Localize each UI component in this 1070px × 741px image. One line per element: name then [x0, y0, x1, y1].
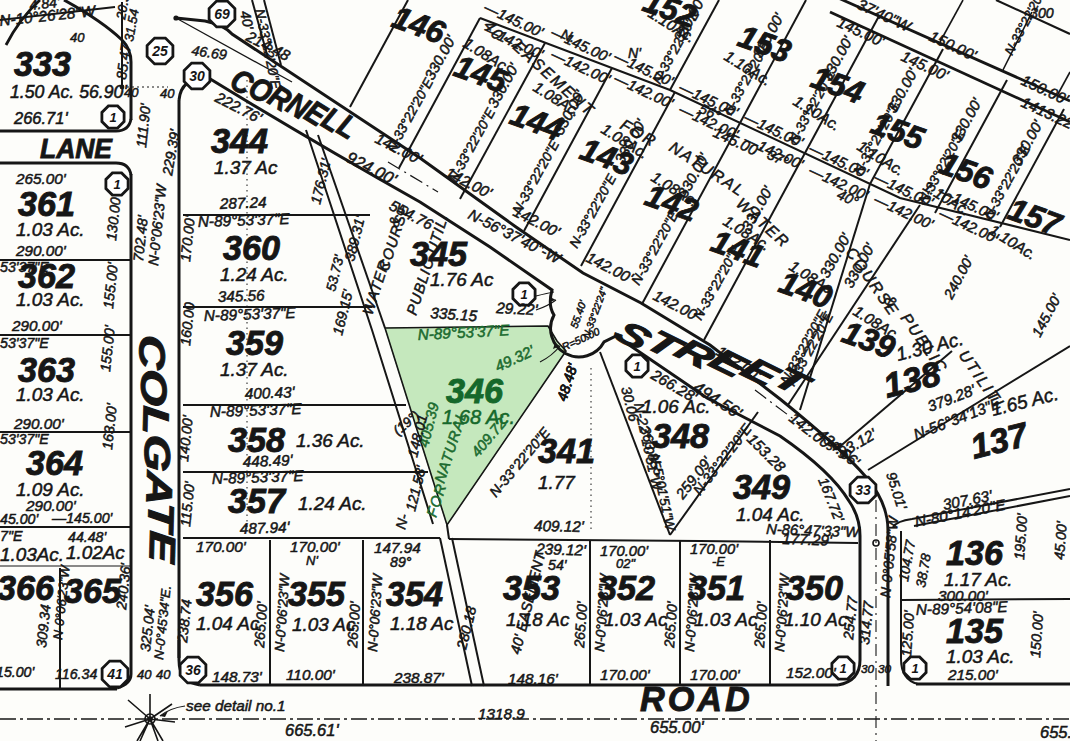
- svg-text:40: 40: [137, 667, 152, 682]
- svg-text:135: 135: [946, 612, 1004, 650]
- svg-text:655.0: 655.0: [1040, 723, 1070, 741]
- svg-text:1.76 Ac: 1.76 Ac: [430, 269, 494, 290]
- svg-text:1.03 Ac: 1.03 Ac: [694, 609, 758, 630]
- svg-text:1.03 Ac.: 1.03 Ac.: [16, 219, 85, 240]
- svg-text:349: 349: [733, 468, 790, 506]
- svg-text:359: 359: [226, 324, 283, 362]
- svg-text:1: 1: [839, 661, 846, 676]
- svg-text:152.00': 152.00': [786, 664, 837, 681]
- svg-text:36: 36: [185, 662, 201, 678]
- svg-text:89°: 89°: [390, 554, 412, 570]
- svg-text:30: 30: [189, 68, 205, 84]
- svg-text:1: 1: [911, 661, 918, 676]
- svg-text:356: 356: [196, 575, 254, 613]
- svg-text:116.34: 116.34: [55, 666, 97, 682]
- svg-text:346: 346: [446, 372, 504, 410]
- svg-text:54': 54': [548, 557, 568, 573]
- svg-text:265.00': 265.00': [344, 600, 363, 649]
- svg-text:N-89°53'37"E: N-89°53'37"E: [212, 467, 305, 487]
- svg-text:53'37"E: 53'37"E: [0, 335, 49, 351]
- svg-text:195.00': 195.00': [1011, 512, 1030, 560]
- svg-text:290.00': 290.00': [13, 415, 65, 432]
- svg-text:177.29': 177.29': [782, 530, 833, 549]
- svg-text:1.03 Ac: 1.03 Ac: [604, 609, 668, 630]
- svg-text:25: 25: [151, 43, 168, 59]
- svg-text:655.00': 655.00': [650, 718, 704, 736]
- svg-text:ROAD: ROAD: [640, 680, 753, 718]
- svg-text:110.00': 110.00': [286, 666, 336, 683]
- svg-text:345.56: 345.56: [218, 286, 266, 305]
- svg-text:LANE: LANE: [40, 132, 113, 164]
- svg-text:30: 30: [861, 662, 875, 676]
- svg-text:333: 333: [14, 45, 71, 83]
- svg-text:1.04 Ac: 1.04 Ac: [196, 613, 260, 634]
- svg-text:1.24 Ac.: 1.24 Ac.: [220, 264, 289, 285]
- svg-text:136: 136: [946, 534, 1004, 572]
- svg-text:125.00': 125.00': [898, 609, 917, 657]
- svg-text:265.00': 265.00': [15, 170, 67, 187]
- svg-text:360: 360: [223, 229, 280, 267]
- svg-text:30: 30: [838, 447, 852, 461]
- svg-text:1.37 Ac.: 1.37 Ac.: [220, 359, 289, 380]
- svg-text:344: 344: [211, 122, 268, 160]
- svg-text:148.73': 148.73': [212, 668, 263, 685]
- svg-text:7"E: 7"E: [0, 528, 23, 544]
- svg-text:265.00': 265.00': [251, 600, 270, 649]
- svg-text:350: 350: [786, 569, 843, 607]
- svg-text:69: 69: [214, 6, 230, 22]
- svg-text:1: 1: [109, 110, 116, 125]
- svg-text:41: 41: [106, 666, 123, 682]
- svg-text:53'37"E: 53'37"E: [0, 259, 49, 275]
- svg-text:1.37 Ac: 1.37 Ac: [214, 157, 278, 178]
- svg-text:355: 355: [288, 575, 346, 613]
- svg-text:N-89°54'08"E: N-89°54'08"E: [916, 598, 1009, 618]
- svg-text:170.00': 170.00': [600, 666, 651, 683]
- svg-text:-E: -E: [712, 554, 725, 569]
- svg-text:1.03 Ac.: 1.03 Ac.: [946, 646, 1015, 667]
- svg-text:290.00': 290.00': [11, 317, 63, 334]
- svg-text:45.00': 45.00': [1051, 520, 1070, 561]
- svg-text:—145.00': —145.00': [51, 510, 114, 526]
- svg-text:1.24 Ac.: 1.24 Ac.: [298, 493, 367, 514]
- svg-text:287.24: 287.24: [219, 193, 267, 212]
- svg-text:265.00': 265.00': [571, 600, 590, 649]
- svg-text:357: 357: [228, 482, 287, 520]
- svg-text:1.06 Ac.: 1.06 Ac.: [642, 396, 711, 417]
- svg-text:1: 1: [633, 359, 640, 374]
- svg-text:see detail no.1: see detail no.1: [186, 697, 286, 714]
- svg-text:N-89°53'37"E: N-89°53'37"E: [204, 304, 297, 324]
- svg-text:40: 40: [160, 86, 175, 101]
- svg-text:N-89°53'37"E: N-89°53'37"E: [198, 210, 291, 230]
- svg-text:1.36 Ac.: 1.36 Ac.: [296, 430, 365, 451]
- svg-text:1.03 Ac.: 1.03 Ac.: [16, 384, 85, 405]
- svg-text:33: 33: [855, 482, 871, 498]
- svg-text:265.00': 265.00': [751, 600, 770, 649]
- svg-text:170.00': 170.00': [690, 666, 741, 683]
- svg-text:1.50 Ac. 56.90': 1.50 Ac. 56.90': [10, 82, 127, 102]
- svg-text:N': N': [306, 553, 318, 568]
- svg-text:1.18 Ac: 1.18 Ac: [390, 613, 454, 634]
- svg-text:02": 02": [616, 556, 636, 571]
- svg-text:354: 354: [386, 575, 443, 613]
- svg-text:53'37"E: 53'37"E: [0, 431, 49, 447]
- svg-text:1: 1: [113, 177, 120, 192]
- svg-text:1.03 Ac.: 1.03 Ac.: [16, 289, 85, 310]
- svg-text:409.12': 409.12': [534, 517, 585, 535]
- svg-text:30: 30: [878, 662, 892, 676]
- svg-text:265.00': 265.00': [661, 600, 680, 649]
- svg-text:665.61': 665.61': [285, 721, 339, 739]
- svg-text:40: 40: [70, 30, 85, 45]
- svg-text:N-89°53'37"E: N-89°53'37"E: [210, 400, 303, 420]
- svg-text:45.00': 45.00': [0, 511, 40, 527]
- svg-text:150.00': 150.00': [1027, 610, 1046, 658]
- svg-text:148.16': 148.16': [508, 670, 559, 687]
- svg-text:29.22': 29.22': [495, 299, 539, 318]
- svg-text:170.00': 170.00': [196, 538, 247, 555]
- svg-text:44.48': 44.48': [68, 529, 108, 545]
- svg-text:335.15: 335.15: [430, 304, 478, 324]
- svg-text:1.77: 1.77: [538, 472, 576, 493]
- svg-text:361: 361: [18, 185, 75, 223]
- svg-text:1.03Ac.: 1.03Ac.: [0, 544, 64, 565]
- svg-text:366: 366: [0, 569, 55, 607]
- svg-text:1318.9: 1318.9: [478, 705, 525, 722]
- svg-text:215.00': 215.00': [947, 666, 999, 683]
- svg-text:290.00': 290.00': [15, 242, 67, 259]
- svg-text:364: 364: [26, 444, 83, 482]
- svg-text:266.71': 266.71': [13, 109, 68, 127]
- svg-text:487.94': 487.94': [240, 518, 291, 537]
- svg-text:15.00': 15.00': [0, 664, 36, 680]
- svg-text:238.87': 238.87': [393, 669, 445, 686]
- svg-text:1.02Ac: 1.02Ac: [66, 542, 125, 563]
- svg-text:400.43': 400.43': [245, 383, 296, 402]
- svg-text:40: 40: [124, 85, 139, 100]
- svg-text:40: 40: [156, 667, 171, 682]
